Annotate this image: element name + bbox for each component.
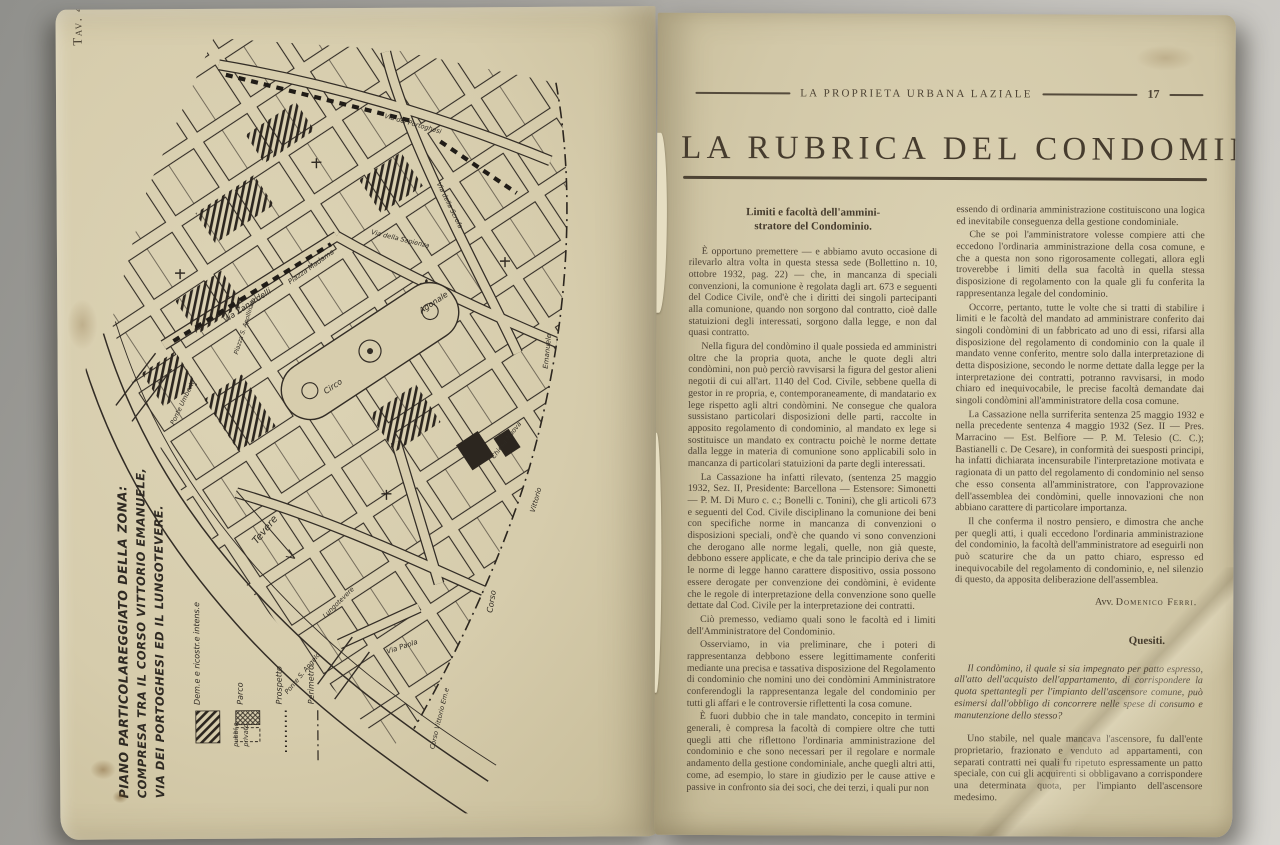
- map-caption-line-2: COMPRESA TRA IL CORSO VITTORIO EMANUELE,: [133, 468, 149, 799]
- paragraph: Occorre, pertanto, tutte le volte che si…: [956, 302, 1205, 408]
- right-page-content: LA PROPRIETA URBANA LAZIALE 17 LA RUBRIC…: [678, 13, 1209, 807]
- journal-title: LA PROPRIETA URBANA LAZIALE: [800, 87, 1032, 100]
- signature-name: Domenico Ferri.: [1116, 597, 1197, 608]
- paragraph: Che se poi l'amministratore volesse comp…: [956, 229, 1205, 300]
- section-heading-line1: Limiti e facoltà dell'ammini-: [689, 205, 938, 220]
- masthead-rule: [1043, 93, 1138, 95]
- section-heading-line2: stratore del Condominio.: [689, 219, 938, 234]
- label-corso: Corso: [485, 589, 498, 613]
- article-columns: Limiti e facoltà dell'ammini- stratore d…: [678, 203, 1209, 807]
- section-heading: Limiti e facoltà dell'ammini- stratore d…: [689, 205, 938, 235]
- signature-prefix: Avv.: [1095, 597, 1116, 608]
- city-plan-map: Piazza Madama Circo Agonale Via Zanardel…: [84, 20, 645, 815]
- torn-page-edge: [654, 133, 667, 313]
- quesiti-answer: Uno stabile, nel quale mancava l'ascenso…: [954, 733, 1203, 804]
- masthead: LA PROPRIETA URBANA LAZIALE 17: [681, 85, 1209, 102]
- article-column-left: Limiti e facoltà dell'ammini- stratore d…: [686, 203, 937, 805]
- open-book: Tav. 4.: [58, 4, 1236, 840]
- legend-label-parco-pubblico: pubbl.o: [232, 722, 240, 747]
- legend-label-parco-privato: privato: [242, 724, 250, 748]
- map-caption-line-1: PIANO PARTICOLAREGGIATO DELLA ZONA:: [114, 485, 131, 798]
- paragraph: essendo di ordinaria amministrazione cos…: [956, 204, 1205, 228]
- label-vittorio: Vittorio: [529, 487, 544, 514]
- article-title: LA RUBRICA DEL CONDOMINIO: [681, 130, 1209, 169]
- masthead-rule: [1169, 93, 1203, 95]
- legend-label-parco: Parco: [236, 682, 245, 704]
- paragraph: Nella figura del condòmino il quale poss…: [688, 341, 937, 471]
- map-caption-line-3: VIA DEI PORTOGHESI ED IL LUNGOTEVERE.: [151, 505, 167, 798]
- label-ponte-s-angelo: Ponte S. Angelo: [283, 651, 322, 696]
- legend-label-perimetro: Perimetro: [306, 665, 315, 704]
- paragraph: Ciò premesso, vediamo quali sono le faco…: [687, 614, 936, 638]
- quesiti-heading: Quesiti.: [955, 634, 1204, 648]
- right-page: LA PROPRIETA URBANA LAZIALE 17 LA RUBRIC…: [654, 13, 1236, 838]
- author-signature: Avv. Domenico Ferri.: [955, 596, 1204, 609]
- legend-label-demolition: Dem.e e ricostr.e intens.e: [192, 602, 202, 705]
- map-caption: PIANO PARTICOLAREGGIATO DELLA ZONA: COMP…: [114, 467, 167, 798]
- paragraph: È fuori dubbio che in tale mandato, conc…: [686, 711, 935, 794]
- page-number: 17: [1147, 87, 1159, 102]
- title-rule: [683, 176, 1207, 181]
- paragraph: La Cassazione nella surriferita sentenza…: [955, 409, 1204, 515]
- legend-label-prospetto: Prospetto: [274, 666, 283, 705]
- torn-page-edge: [654, 433, 662, 693]
- legend-swatch-demolition: [196, 711, 220, 743]
- masthead-rule: [695, 91, 790, 93]
- article-column-right: essendo di ordinaria amministrazione cos…: [954, 204, 1205, 806]
- paragraph: La Cassazione ha infatti rilevato, (sent…: [687, 472, 936, 613]
- paragraph: Osserviamo, in via preliminare, che i po…: [687, 639, 936, 710]
- paragraph: È opportuno premettere — e abbiamo avuto…: [688, 245, 937, 340]
- paragraph: Il che conferma il nostro pensiero, e di…: [955, 516, 1204, 587]
- photo-background: Tav. 4.: [0, 0, 1280, 845]
- left-page: Tav. 4.: [55, 6, 660, 840]
- quesiti-question: Il condòmino, il quale si sia impegnato …: [954, 663, 1203, 723]
